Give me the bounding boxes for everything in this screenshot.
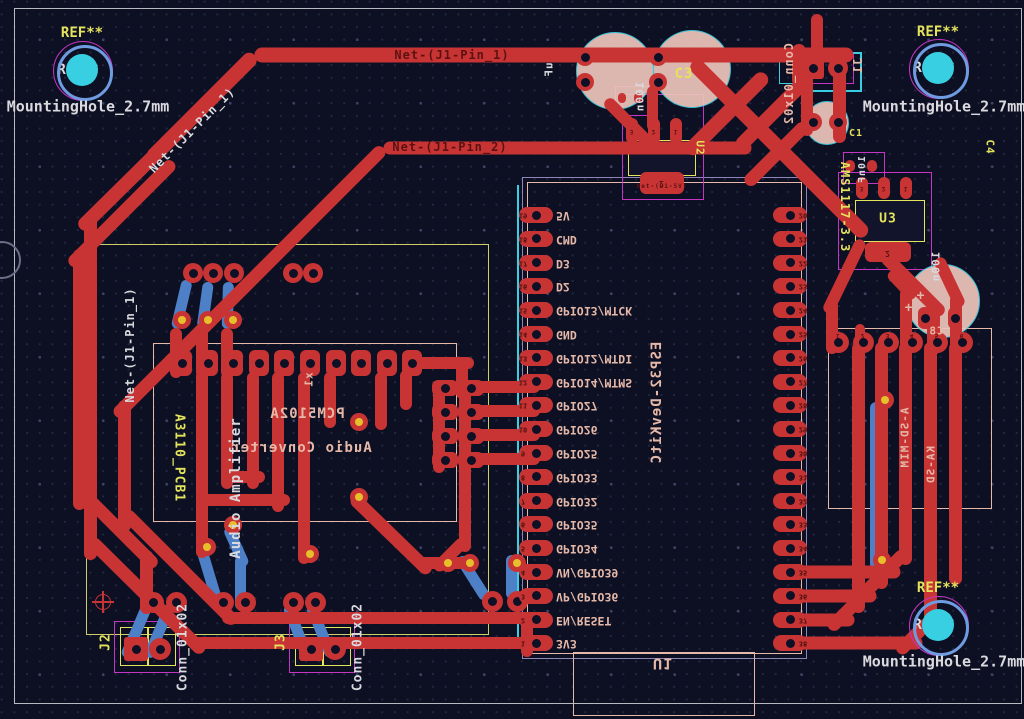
drill-hole	[178, 359, 187, 368]
silkscreen-text[interactable]: KA-SD	[926, 446, 937, 484]
esp32-pin-number: 36	[799, 592, 807, 599]
esp32-pin-label[interactable]: D2	[556, 281, 570, 293]
pad[interactable]	[402, 350, 422, 376]
pad[interactable]	[432, 452, 458, 468]
mounting-hole-footprint-name: MountingHole_2.7mm	[863, 655, 1024, 670]
esp32-pin-label[interactable]: GPIO14/MTMS	[556, 376, 632, 388]
drill-hole	[786, 544, 795, 553]
pad[interactable]	[283, 263, 303, 283]
pad[interactable]	[804, 113, 822, 131]
drill-hole	[654, 78, 663, 87]
esp32-pin-label[interactable]: GPIO12/MTDI	[556, 352, 632, 364]
mounting-hole-footprint-name: MountingHole_2.7mm	[7, 100, 170, 115]
trace-segment[interactable]	[255, 48, 854, 63]
esp32-pin-number: 21	[799, 235, 807, 242]
esp32-pin-number: 25	[799, 331, 807, 338]
via-hole	[355, 418, 363, 426]
esp32-pin-number: 29	[799, 426, 807, 433]
via-hole	[229, 316, 237, 324]
via[interactable]	[439, 554, 457, 572]
silkscreen-text[interactable]: +	[905, 302, 914, 315]
drill-hole	[532, 377, 541, 386]
drill-hole	[532, 353, 541, 362]
pad[interactable]	[458, 452, 484, 468]
pad[interactable]	[576, 73, 594, 91]
drill-hole	[786, 520, 795, 529]
drill-hole	[532, 211, 541, 220]
drill-hole	[786, 425, 795, 434]
mounting-hole-ref: REF**	[917, 581, 959, 595]
drill-hole	[921, 314, 930, 323]
silkscreen-text[interactable]: Conn_01x02	[177, 603, 190, 691]
pad[interactable]	[235, 592, 256, 613]
esp32-pin-label[interactable]: GPIO27	[556, 400, 598, 412]
pad[interactable]	[213, 592, 234, 613]
silkscreen-text[interactable]: 1	[836, 332, 841, 338]
pad[interactable]	[649, 73, 667, 91]
drill-hole	[383, 359, 392, 368]
drill-hole	[786, 330, 795, 339]
silkscreen-text[interactable]: U1	[653, 656, 673, 671]
drill-hole	[786, 449, 795, 458]
esp32-pin-number: 1	[521, 640, 525, 647]
silkscreen-text[interactable]: A-SD-MIM	[900, 408, 911, 469]
drill-hole	[306, 359, 315, 368]
esp32-pin-number: 24	[799, 307, 807, 314]
pcb-canvas: 195V18CMD17D316D215GPIO13/MTCK14GND13GPI…	[0, 0, 1024, 719]
esp32-pin-number: 33	[799, 521, 807, 528]
esp32-pin-label[interactable]: EN/RESET	[556, 614, 611, 626]
silkscreen-text[interactable]: C1	[849, 129, 863, 139]
silkscreen-text[interactable]: Net-(J1-Pin_1)	[124, 287, 136, 402]
esp32-pin-label[interactable]: GND	[556, 328, 577, 340]
silkscreen-text[interactable]: 3	[886, 332, 891, 338]
silkscreen-text[interactable]: Audio Converter	[230, 441, 371, 455]
via[interactable]	[173, 311, 191, 329]
drill-hole	[532, 258, 541, 267]
via-hole	[204, 316, 212, 324]
via-hole	[881, 396, 889, 404]
drill-hole	[786, 377, 795, 386]
plated-hole	[922, 52, 954, 84]
esp32-pin-number: 17	[519, 259, 527, 266]
pad[interactable]	[458, 380, 484, 396]
pad[interactable]	[377, 350, 397, 376]
esp32-pin-number: 13	[519, 354, 527, 361]
drill-hole	[786, 591, 795, 600]
drill-hole	[467, 456, 476, 465]
esp32-pin-label[interactable]: GPIO32	[556, 495, 598, 507]
esp32-pin-number: 31	[799, 473, 807, 480]
via-hole	[355, 493, 363, 501]
pad[interactable]	[829, 113, 847, 131]
pad[interactable]	[482, 591, 503, 612]
drill-hole	[132, 645, 141, 654]
pad[interactable]	[948, 307, 962, 329]
via[interactable]	[876, 391, 894, 409]
drill-hole	[532, 520, 541, 529]
esp32-pin-number: 18	[519, 235, 527, 242]
esp32-pin-number: 2	[521, 616, 525, 623]
drill-hole	[532, 282, 541, 291]
plated-hole	[922, 609, 954, 641]
pad[interactable]	[867, 160, 877, 172]
drill-hole	[786, 401, 795, 410]
drill-hole	[307, 645, 316, 654]
drill-hole	[441, 408, 450, 417]
drill-hole	[532, 449, 541, 458]
drill-hole	[809, 118, 818, 127]
drill-hole	[786, 234, 795, 243]
esp32-pin-label[interactable]: 5V	[556, 209, 570, 221]
pad[interactable]	[458, 404, 484, 420]
silkscreen-text[interactable]: Audio Amplifier	[229, 417, 243, 558]
silkscreen-text[interactable]: 10nF	[858, 156, 868, 184]
esp32-pin-number: 15	[519, 307, 527, 314]
esp32-pin-number: 27	[799, 378, 807, 385]
esp32-pin-number: 38	[799, 640, 807, 647]
esp32-pin-label[interactable]: D3	[556, 257, 570, 269]
esp32-pin-label[interactable]: GPIO34	[556, 542, 598, 554]
drill-hole	[834, 118, 843, 127]
drill-hole	[532, 306, 541, 315]
silkscreen-text[interactable]: Conn_01x02	[783, 43, 795, 125]
silkscreen-text[interactable]: 100n	[635, 82, 646, 113]
silkscreen-text[interactable]: C4	[985, 139, 996, 154]
pad[interactable]	[143, 592, 164, 613]
mounting-hole-footprint-name: MountingHole_2.7mm	[863, 100, 1024, 115]
pad[interactable]	[432, 380, 458, 396]
drill-hole	[786, 258, 795, 267]
esp32-pin-number: 20	[799, 212, 807, 219]
drill-hole	[532, 591, 541, 600]
drill-hole	[332, 359, 341, 368]
silkscreen-text[interactable]: Conn_01x02	[352, 603, 365, 691]
pad[interactable]	[203, 263, 223, 283]
drill-hole	[532, 401, 541, 410]
drill-hole	[255, 359, 264, 368]
plated-hole	[66, 54, 98, 86]
pad[interactable]	[274, 350, 294, 376]
silkscreen-text[interactable]: x1	[304, 372, 315, 387]
pad[interactable]	[828, 58, 848, 78]
drill-hole	[467, 408, 476, 417]
pad[interactable]	[802, 57, 824, 79]
esp32-pin-number: 6	[521, 521, 525, 528]
trace-segment[interactable]	[375, 372, 387, 430]
drill-hole	[786, 353, 795, 362]
pad[interactable]	[351, 350, 371, 376]
drill-hole	[532, 544, 541, 553]
via-hole	[444, 559, 452, 567]
silkscreen-text[interactable]: 2	[882, 185, 887, 191]
trace-segment[interactable]	[196, 370, 208, 558]
trace-segment[interactable]	[73, 249, 86, 510]
drill-hole	[204, 359, 213, 368]
drill-hole	[532, 496, 541, 505]
drill-hole	[230, 269, 239, 278]
esp32-pin-number: 32	[799, 497, 807, 504]
esp32-pin-number: 30	[799, 450, 807, 457]
pad[interactable]	[432, 404, 458, 420]
silkscreen-text[interactable]: 100n	[931, 252, 942, 283]
esp32-pin-label[interactable]: 3V3	[556, 638, 577, 650]
esp32-pin-number: 3	[521, 592, 525, 599]
esp32-pin-number: 26	[799, 354, 807, 361]
drill-hole	[581, 53, 590, 62]
pad[interactable]	[299, 637, 323, 661]
drill-hole	[408, 359, 417, 368]
pad[interactable]	[224, 263, 244, 283]
esp32-pin-number: 12	[519, 378, 527, 385]
silkscreen-text[interactable]: 3	[630, 128, 635, 134]
esp32-pin-number: 9	[521, 450, 525, 457]
drill-hole	[467, 384, 476, 393]
pad[interactable]	[305, 592, 326, 613]
drill-hole	[786, 472, 795, 481]
drill-hole	[532, 615, 541, 624]
silkscreen-text[interactable]: 3	[860, 185, 865, 191]
silkscreen-text[interactable]: 1	[904, 185, 909, 191]
drill-hole	[581, 78, 590, 87]
esp32-pin-number: 28	[799, 402, 807, 409]
silkscreen-text[interactable]: 4	[910, 332, 915, 338]
drill-hole	[786, 639, 795, 648]
silkscreen-text[interactable]: U2	[695, 140, 706, 155]
esp32-pin-number: 14	[519, 331, 527, 338]
pad[interactable]	[149, 638, 171, 660]
drill-hole	[209, 269, 218, 278]
via-hole	[178, 316, 186, 324]
via-hole	[513, 559, 521, 567]
silkscreen-text[interactable]: 2	[861, 332, 866, 338]
esp32-pin-label[interactable]: VP/GPIO36	[556, 590, 618, 602]
silkscreen-text[interactable]: 2	[885, 249, 891, 257]
silkscreen-text[interactable]: A3110_PCB1	[173, 414, 186, 502]
drill-hole	[229, 359, 238, 368]
esp32-pin-number: 4	[521, 569, 525, 576]
drill-hole	[441, 384, 450, 393]
esp32-pin-label[interactable]: GPIO33	[556, 471, 598, 483]
drill-hole	[532, 639, 541, 648]
drill-hole	[311, 598, 320, 607]
esp32-pin-number: 23	[799, 283, 807, 290]
silkscreen-text[interactable]: J3	[275, 633, 288, 651]
silkscreen-text[interactable]: 5	[935, 332, 940, 338]
trace-segment[interactable]	[222, 612, 539, 624]
silkscreen-text[interactable]: uF	[544, 62, 555, 77]
via[interactable]	[350, 413, 368, 431]
silkscreen-text[interactable]: 1	[674, 128, 679, 134]
drill-hole	[488, 597, 497, 606]
drill-hole	[280, 359, 289, 368]
drill-hole	[786, 496, 795, 505]
drill-hole	[219, 598, 228, 607]
drill-hole	[309, 269, 318, 278]
drill-hole	[786, 211, 795, 220]
esp32-pin-number: 35	[799, 569, 807, 576]
esp32-pin-number: 22	[799, 259, 807, 266]
placement-origin-icon[interactable]	[92, 591, 114, 613]
drill-hole	[532, 425, 541, 434]
silkscreen-text[interactable]: Net-(J1-Pin_1)	[394, 49, 509, 61]
pad[interactable]	[432, 428, 458, 444]
via[interactable]	[350, 488, 368, 506]
via[interactable]	[301, 545, 319, 563]
silkscreen-text[interactable]: 2	[652, 128, 657, 134]
via[interactable]	[199, 311, 217, 329]
esp32-pin-number: 8	[521, 473, 525, 480]
pad[interactable]	[198, 350, 218, 376]
via[interactable]	[873, 551, 891, 569]
silkscreen-text[interactable]: AMS1117-3.3	[839, 162, 851, 252]
drill-hole	[786, 615, 795, 624]
drill-hole	[809, 64, 818, 73]
silkscreen-text[interactable]: C3	[675, 67, 694, 81]
silkscreen-text[interactable]: J1	[852, 58, 864, 74]
esp32-pin-number: 37	[799, 616, 807, 623]
drill-hole	[532, 472, 541, 481]
drill-hole	[149, 598, 158, 607]
pad[interactable]	[324, 638, 346, 660]
esp32-pin-label[interactable]: VN/GPIO39	[556, 566, 618, 578]
silkscreen-text[interactable]: 6	[960, 332, 965, 338]
via[interactable]	[461, 554, 479, 572]
esp32-pin-number: 11	[519, 402, 527, 409]
silkscreen-text[interactable]: ESP32-DevKitC	[650, 342, 664, 465]
esp32-pin-label[interactable]: GPIO26	[556, 423, 598, 435]
pad[interactable]	[283, 592, 304, 613]
drill-hole	[241, 598, 250, 607]
via-hole	[203, 543, 211, 551]
via[interactable]	[198, 538, 216, 556]
drill-hole	[654, 53, 663, 62]
drill-hole	[156, 645, 165, 654]
via-hole	[306, 550, 314, 558]
esp32-pin-label[interactable]: GPIO35	[556, 519, 598, 531]
mounting-hole-ref: REF**	[61, 26, 103, 40]
drill-hole	[289, 269, 298, 278]
pad[interactable]	[618, 93, 626, 103]
drill-hole	[467, 432, 476, 441]
esp32-pin-number: 7	[521, 497, 525, 504]
esp32-pin-number: 16	[519, 283, 527, 290]
drill-hole	[951, 314, 960, 323]
drill-hole	[357, 359, 366, 368]
silkscreen-text[interactable]: PCM5102A	[269, 407, 344, 421]
drill-hole	[786, 568, 795, 577]
esp32-pin-number: 5	[521, 545, 525, 552]
trace-segment[interactable]	[949, 342, 962, 585]
drill-hole	[786, 282, 795, 291]
drill-hole	[289, 598, 298, 607]
drill-hole	[532, 330, 541, 339]
via-hole	[878, 556, 886, 564]
esp32-pin-number: 10	[519, 426, 527, 433]
esp32-pin-label[interactable]: GPIO25	[556, 447, 598, 459]
drill-hole	[834, 64, 843, 73]
drill-hole	[532, 568, 541, 577]
drill-hole	[331, 645, 340, 654]
pad[interactable]	[223, 350, 243, 376]
drill-hole	[189, 269, 198, 278]
silkscreen-text[interactable]: J2	[100, 633, 113, 651]
drill-hole	[441, 432, 450, 441]
mounting-hole-ref: REF**	[917, 25, 959, 39]
trace-segment[interactable]	[298, 372, 310, 564]
silkscreen-text[interactable]: +	[917, 290, 926, 303]
trace-segment[interactable]	[400, 370, 412, 410]
pad[interactable]	[326, 350, 346, 376]
pad[interactable]	[124, 637, 148, 661]
silkscreen-text[interactable]: Net-(J1-Pin_2)	[392, 141, 507, 153]
esp32-pin-number: 19	[519, 212, 527, 219]
pad[interactable]	[458, 428, 484, 444]
drill-hole	[786, 306, 795, 315]
pad[interactable]	[249, 350, 269, 376]
silkscreen-text[interactable]: U3	[879, 213, 897, 226]
esp32-pin-label[interactable]: GPIO13/MTCK	[556, 304, 632, 316]
pad[interactable]	[649, 48, 667, 66]
pad[interactable]	[183, 263, 203, 283]
esp32-pin-label[interactable]: CMD	[556, 233, 577, 245]
silkscreen-text[interactable]: 2	[659, 179, 665, 187]
via[interactable]	[224, 311, 242, 329]
via-hole	[466, 559, 474, 567]
drill-hole	[532, 234, 541, 243]
pad[interactable]	[576, 48, 594, 66]
drill-hole	[441, 456, 450, 465]
trace-segment[interactable]	[202, 494, 290, 506]
pad[interactable]	[303, 263, 323, 283]
pad[interactable]	[172, 350, 192, 376]
esp32-pin-number: 34	[799, 545, 807, 552]
